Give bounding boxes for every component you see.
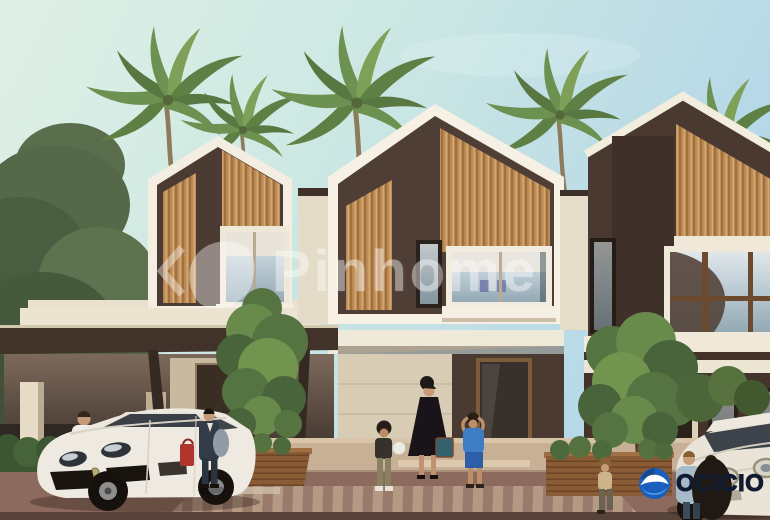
- brand-logo: OCICIO: [638, 467, 764, 500]
- handbag: [436, 438, 453, 457]
- wood-panel: [163, 173, 196, 303]
- cloud: [400, 33, 640, 77]
- brand-logo-icon: [638, 467, 671, 500]
- brand-logo-text: OCICIO: [676, 472, 764, 496]
- red-bag: [180, 444, 194, 466]
- party-wall: [560, 190, 590, 330]
- ball: [393, 442, 406, 455]
- party-wall: [298, 188, 332, 324]
- townhouse-scene: [0, 0, 780, 520]
- real-estate-render: Pinhome OCICIO: [0, 0, 780, 520]
- right-white-border: [770, 0, 780, 520]
